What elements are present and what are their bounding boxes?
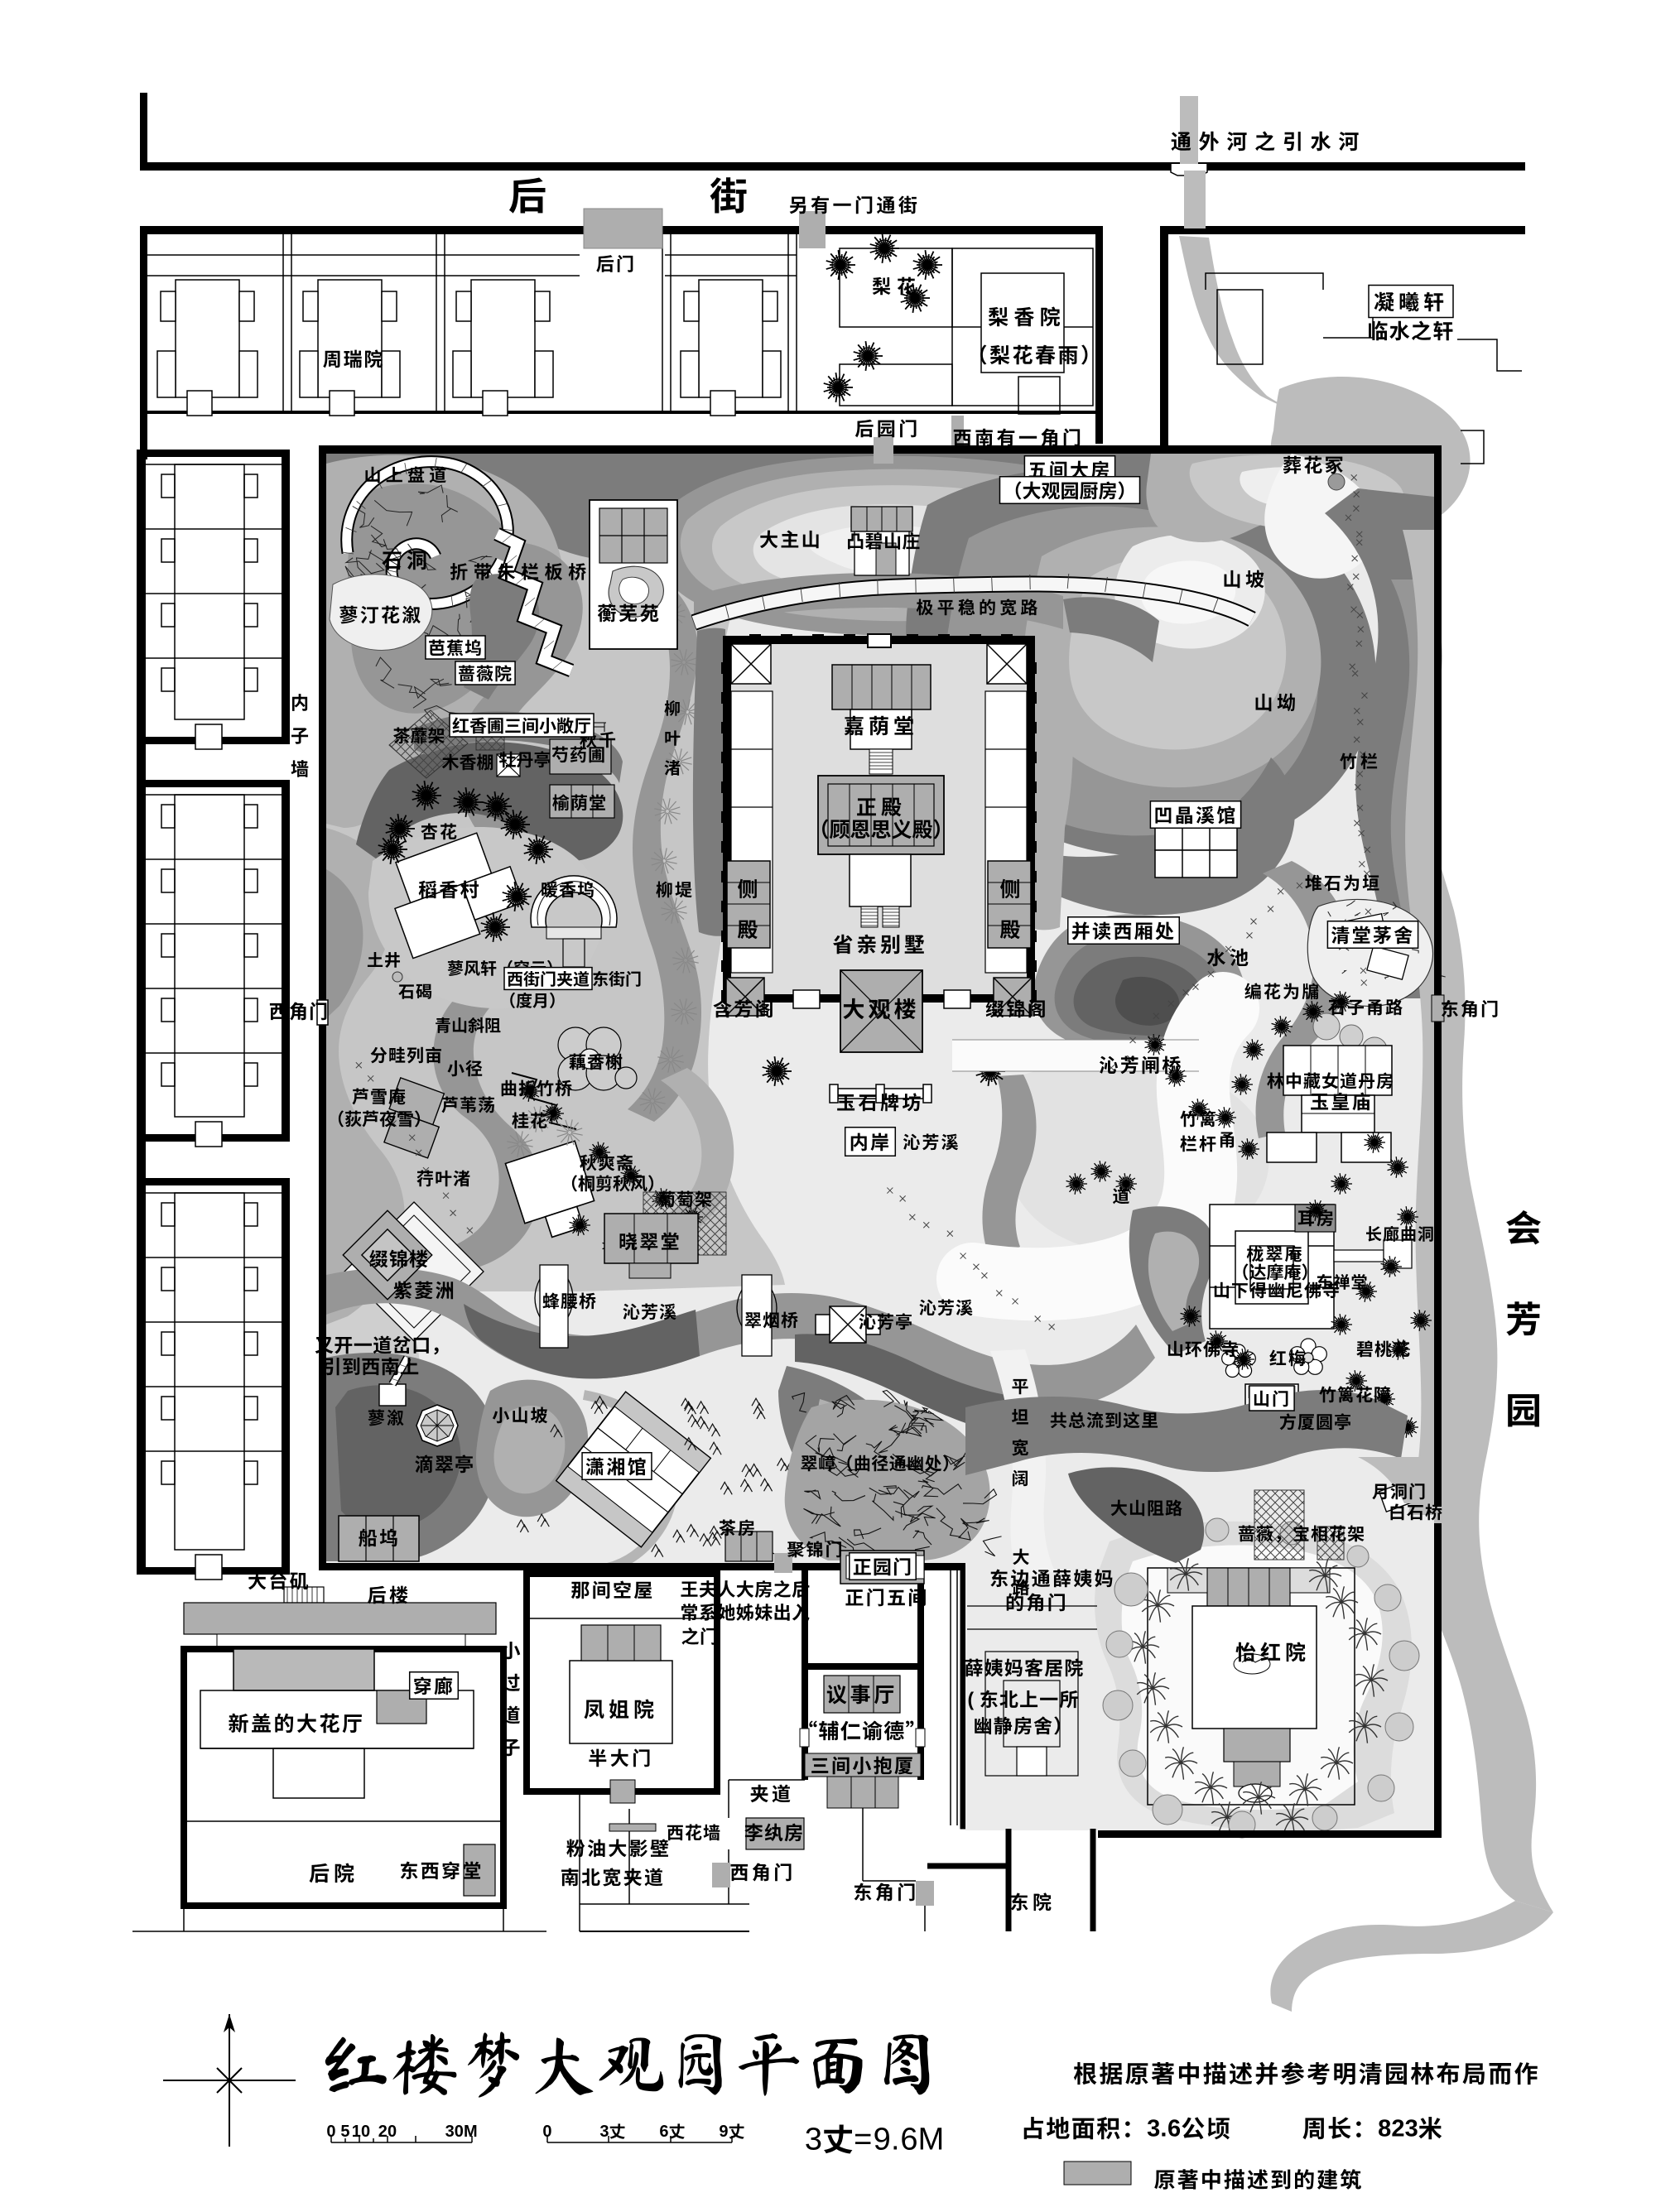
svg-text:3: 3: [599, 2123, 609, 2141]
svg-text:8: 8: [1378, 2115, 1391, 2142]
svg-text:0: 0: [326, 2123, 335, 2141]
svg-text:3: 3: [805, 2123, 822, 2157]
svg-text:2: 2: [1391, 2115, 1404, 2142]
svg-text:9: 9: [874, 2123, 891, 2157]
svg-text:M: M: [918, 2123, 945, 2157]
svg-text:5: 5: [340, 2123, 349, 2141]
svg-text:1: 1: [352, 2123, 361, 2141]
svg-text:0: 0: [455, 2123, 464, 2141]
svg-text:6: 6: [1167, 2115, 1181, 2142]
svg-text:3: 3: [1405, 2115, 1418, 2142]
svg-text:2: 2: [378, 2123, 388, 2141]
svg-text:0: 0: [361, 2123, 370, 2141]
svg-text:.: .: [1160, 2115, 1167, 2142]
svg-text:3: 3: [1147, 2115, 1160, 2142]
svg-text:0: 0: [388, 2123, 397, 2141]
svg-text:6: 6: [900, 2123, 917, 2157]
svg-text:.: .: [891, 2123, 900, 2157]
svg-text:9: 9: [719, 2123, 728, 2141]
svg-text:0: 0: [542, 2123, 551, 2141]
svg-text:3: 3: [445, 2123, 455, 2141]
svg-text:(: (: [967, 1688, 974, 1709]
svg-text:M: M: [464, 2123, 478, 2141]
svg-text:6: 6: [659, 2123, 668, 2141]
svg-text:=: =: [854, 2123, 872, 2157]
